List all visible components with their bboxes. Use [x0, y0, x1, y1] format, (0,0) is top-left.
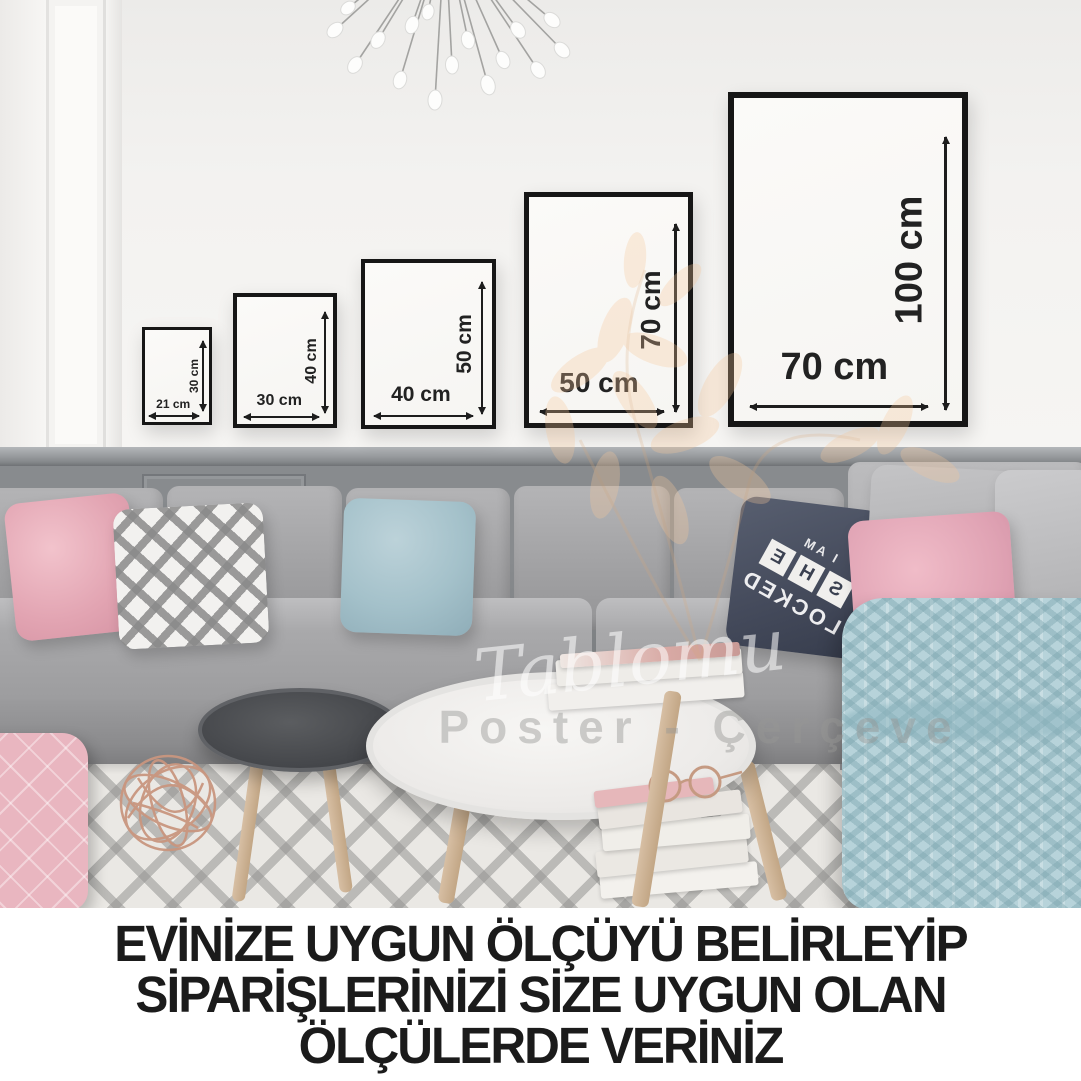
frame-21x30-width-label: 21 cm [156, 397, 190, 411]
chandelier [300, 0, 620, 140]
pillow-blue [340, 498, 477, 637]
knit-blanket [842, 598, 1081, 910]
wall-left-panel [0, 0, 46, 450]
wall-corner-shadow [106, 0, 122, 450]
blanket-fold [842, 700, 1081, 740]
frame-50x70-width-label: 50 cm [559, 367, 638, 399]
frame-30x40-width-label: 30 cm [257, 392, 302, 410]
caption: EVİNİZE UYGUN ÖLÇÜYÜ BELİRLEYİP SİPARİŞL… [16, 918, 1065, 1071]
frame-21x30: 21 cm 30 cm [142, 327, 212, 425]
frame-40x50-height-label: 50 cm [453, 314, 477, 374]
product-image: 21 cm 30 cm 30 cm 40 cm 40 cm 50 cm 50 c… [0, 0, 1081, 1081]
caption-line-1: EVİNİZE UYGUN ÖLÇÜYÜ BELİRLEYİP [16, 918, 1065, 969]
frame-40x50-width-label: 40 cm [391, 383, 451, 407]
frame-30x40-height-label: 40 cm [303, 338, 321, 383]
pink-pouf [0, 733, 88, 911]
width-arrow [244, 416, 319, 418]
wall-pilaster-molding [46, 0, 106, 450]
frame-70x100-width-label: 70 cm [780, 346, 888, 389]
height-arrow [324, 312, 326, 413]
frame-50x70: 50 cm 70 cm [524, 192, 693, 428]
height-arrow [481, 282, 483, 414]
frame-70x100: 70 cm 100 cm [728, 92, 968, 427]
copper-wire-ball [108, 748, 228, 858]
frame-50x70-height-label: 70 cm [635, 270, 667, 349]
pillow-geometric [112, 502, 269, 650]
frame-30x40: 30 cm 40 cm [233, 293, 337, 428]
frame-21x30-height-label: 30 cm [187, 359, 201, 393]
caption-line-3: ÖLÇÜLERDE VERİNİZ [16, 1020, 1065, 1071]
width-arrow [149, 415, 199, 417]
letter-block: S [816, 570, 854, 608]
frame-40x50: 40 cm 50 cm [361, 259, 496, 429]
height-arrow [202, 341, 204, 411]
width-arrow [374, 415, 473, 417]
frame-70x100-height-label: 100 cm [889, 195, 932, 324]
width-arrow [540, 410, 664, 413]
height-arrow [674, 224, 677, 412]
caption-line-2: SİPARİŞLERİNİZİ SİZE UYGUN OLAN [16, 969, 1065, 1020]
width-arrow [750, 405, 928, 408]
height-arrow [944, 137, 947, 410]
